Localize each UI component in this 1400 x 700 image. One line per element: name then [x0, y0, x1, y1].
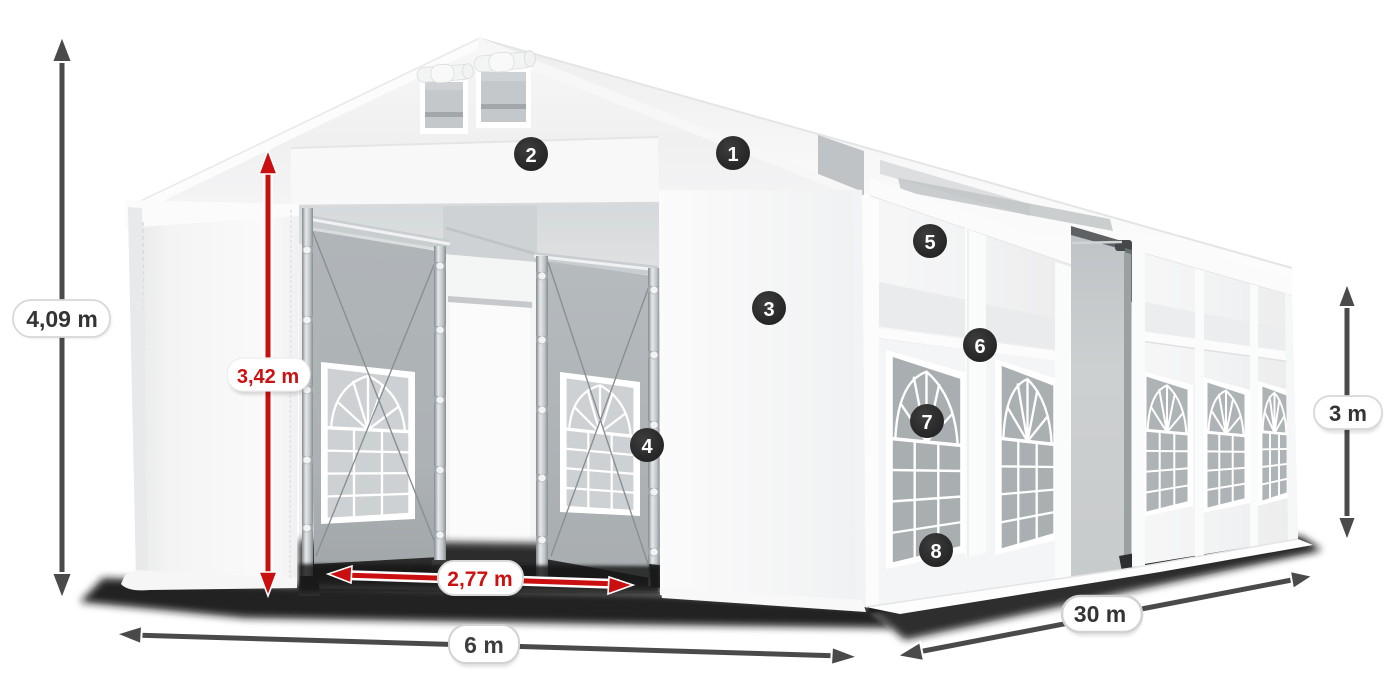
svg-text:6: 6 — [974, 336, 985, 358]
svg-text:3 m: 3 m — [1329, 401, 1367, 426]
svg-text:8: 8 — [930, 541, 941, 563]
svg-text:3,42 m: 3,42 m — [237, 366, 299, 388]
svg-text:7: 7 — [921, 412, 932, 434]
svg-text:4,09 m: 4,09 m — [26, 306, 98, 332]
svg-text:4: 4 — [641, 436, 653, 458]
svg-text:6 m: 6 m — [464, 632, 504, 658]
svg-text:5: 5 — [924, 232, 935, 254]
svg-text:30 m: 30 m — [1074, 601, 1126, 627]
svg-text:2,77 m: 2,77 m — [447, 568, 512, 591]
svg-text:2: 2 — [525, 145, 536, 167]
svg-text:1: 1 — [727, 144, 738, 166]
svg-text:3: 3 — [763, 299, 774, 321]
